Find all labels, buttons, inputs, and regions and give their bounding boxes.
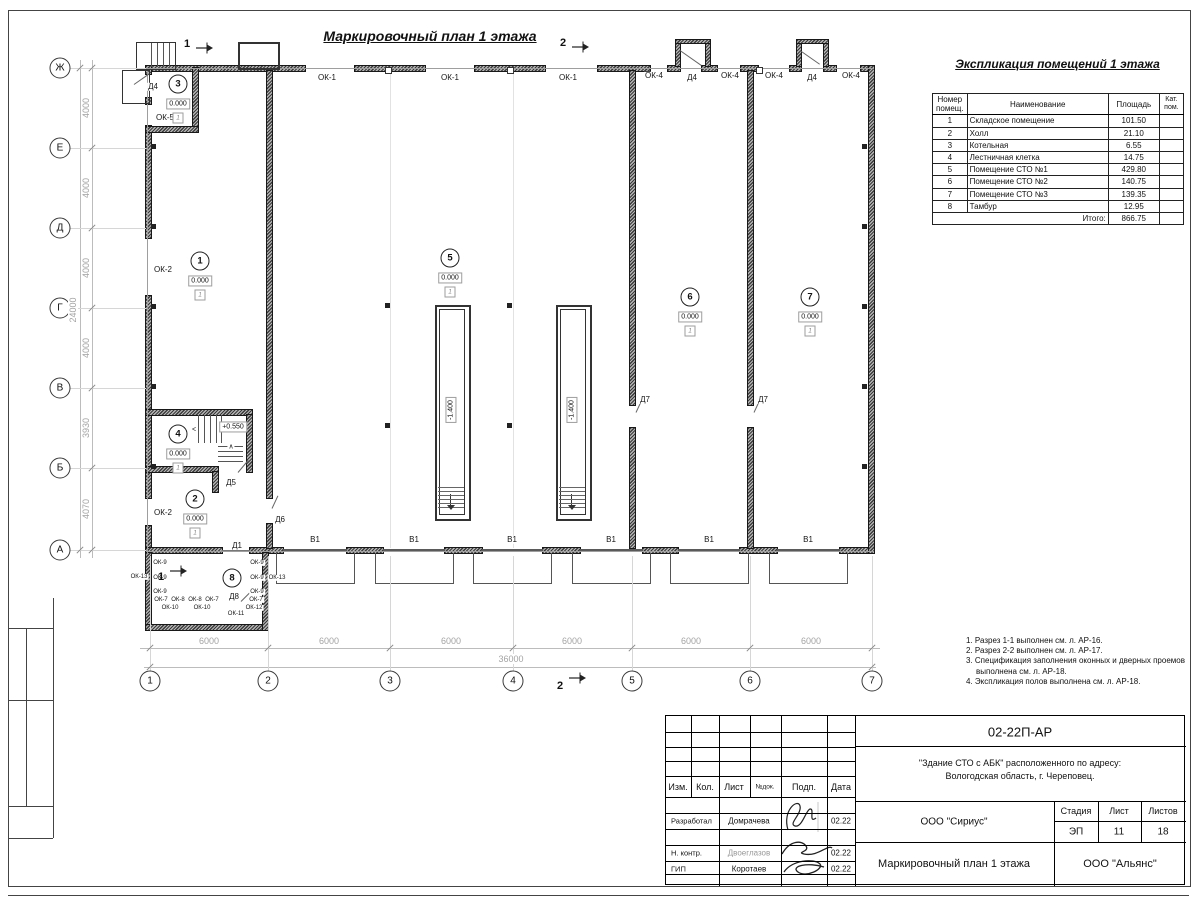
wall xyxy=(824,40,828,66)
plan-label-ОК-12: ОК-12 xyxy=(245,605,264,611)
table-cell: 429.80 xyxy=(1108,164,1159,176)
wall xyxy=(247,415,252,472)
stamp-role: ГИП xyxy=(671,865,686,874)
plan-label-Д6: Д6 xyxy=(274,516,286,524)
plan-label-ОК-1: ОК-1 xyxy=(317,74,337,82)
table-row: 2Холл21.10 xyxy=(933,127,1184,139)
plan-label-ОК-7: ОК-7 xyxy=(248,597,264,603)
stamp-line xyxy=(666,797,855,798)
axis-line xyxy=(150,556,151,672)
axis-line xyxy=(70,388,146,389)
table-cell: 4 xyxy=(933,151,968,163)
stamp-line xyxy=(855,746,1186,747)
stamp-line xyxy=(855,842,1186,843)
stamp-line xyxy=(666,874,855,875)
table-cell: 6 xyxy=(933,176,968,188)
stamp-line xyxy=(666,813,855,814)
wall xyxy=(213,472,218,492)
dim-label: 3930 xyxy=(81,417,91,439)
dim-label: 4000 xyxy=(81,337,91,359)
stamp-name: Двоеглазов xyxy=(728,849,771,858)
stamp-col-header: Изм. xyxy=(668,782,687,792)
expl-col-header: Площадь xyxy=(1108,94,1159,115)
plan-label-Д7: Д7 xyxy=(757,396,769,404)
notes-list: 1. Разрез 1-1 выполнен см. л. АР-16.2. Р… xyxy=(966,636,1200,687)
sheets-label: Листов xyxy=(1148,806,1177,816)
plan-label-ОК-1: ОК-1 xyxy=(440,74,460,82)
plan-line xyxy=(218,451,243,452)
table-cell: Холл xyxy=(967,127,1108,139)
plan-label-ОК-9: ОК-9 xyxy=(152,560,168,566)
stamp-line xyxy=(750,716,751,797)
room-bubble-8: 8 xyxy=(223,569,242,588)
axis-bubble-Е: Е xyxy=(50,138,71,159)
wall xyxy=(193,68,198,127)
table-cell: Складское помещение xyxy=(967,115,1108,127)
stamp-line xyxy=(666,732,855,733)
plan-line xyxy=(147,66,148,553)
plan-line xyxy=(678,549,740,551)
apron-line xyxy=(354,553,355,583)
title-block: 02-22П-АР"Здание СТО с АБК" расположенно… xyxy=(665,715,1185,885)
explication-header-row: Номер помещ.НаименованиеПлощадьКат. пом. xyxy=(933,94,1184,115)
window-axis-marker xyxy=(756,67,763,74)
table-row: 8Тамбур12.95 xyxy=(933,200,1184,212)
plan-line xyxy=(210,415,211,443)
leader-line xyxy=(272,496,279,509)
stamp-col-header: Лист xyxy=(724,782,744,792)
apron-line xyxy=(572,553,573,583)
section-arrow-icon xyxy=(569,671,587,683)
plan-label-ОК-9: ОК-9 xyxy=(249,575,265,581)
pit-elevation-mark: -1.400 xyxy=(445,397,456,423)
plan-label-ОК-7: ОК-7 xyxy=(204,597,220,603)
plan-label-ОК-13: ОК-13 xyxy=(268,575,287,581)
dim-label: 6000 xyxy=(440,636,462,646)
table-cell: 12.95 xyxy=(1108,200,1159,212)
stamp-line xyxy=(855,801,1186,802)
plan-label-В1: В1 xyxy=(309,536,321,544)
plan-line xyxy=(146,551,874,552)
apron-line xyxy=(650,553,651,583)
plan-line xyxy=(144,667,876,668)
stamp-date: 02.22 xyxy=(831,817,851,826)
elevation-mark: 0.000 xyxy=(438,272,462,283)
floor-type-mark: 1 xyxy=(445,287,456,298)
doc-number: 02-22П-АР xyxy=(988,725,1052,740)
plan-line xyxy=(218,456,243,457)
project-address-line2: Вологодская область, г. Череповец. xyxy=(945,771,1094,781)
plan-line xyxy=(80,60,81,558)
wall xyxy=(676,40,680,66)
apron-line xyxy=(473,553,474,583)
room-bubble-1: 1 xyxy=(191,252,210,271)
plan-label-Д4: Д4 xyxy=(686,74,698,82)
axis-bubble-7: 7 xyxy=(862,671,883,692)
stamp-date: 02.22 xyxy=(831,849,851,858)
sheet-label: Лист xyxy=(1109,806,1129,816)
stamp-line xyxy=(666,747,855,748)
axis-line xyxy=(70,228,146,229)
table-cell: 5 xyxy=(933,164,968,176)
table-cell: Помещение СТО №2 xyxy=(967,176,1108,188)
section-mark-2: 2 xyxy=(557,680,563,692)
plan-label-ОК-9: ОК-9 xyxy=(152,589,168,595)
stamp-role: Разработал xyxy=(671,817,712,826)
plan-line xyxy=(198,415,199,443)
elevation-mark: 0.000 xyxy=(183,513,207,524)
table-cell: 1 xyxy=(933,115,968,127)
drawing-name: Маркировочный план 1 этажа xyxy=(878,858,1030,870)
stamp-col-header: №док. xyxy=(755,784,774,791)
room-bubble-7: 7 xyxy=(801,288,820,307)
axis-bubble-Ж: Ж xyxy=(50,58,71,79)
section-mark-1: 1 xyxy=(184,38,190,50)
table-row: 5Помещение СТО №1429.80 xyxy=(933,164,1184,176)
stamp-col-header: Кол. xyxy=(696,782,714,792)
section-arrow-icon xyxy=(196,41,214,53)
axis-bubble-1: 1 xyxy=(140,671,161,692)
apron-line xyxy=(769,583,848,584)
table-cell: 2 xyxy=(933,127,968,139)
axis-bubble-4: 4 xyxy=(503,671,524,692)
org1-name: ООО "Сириус" xyxy=(920,817,987,828)
plan-label-Д4: Д4 xyxy=(147,83,159,91)
total-label: Итого: xyxy=(933,212,1109,224)
dim-label: 6000 xyxy=(680,636,702,646)
room-bubble-2: 2 xyxy=(186,490,205,509)
plan-line xyxy=(777,549,840,551)
apron-line xyxy=(572,583,651,584)
table-cell: 140.75 xyxy=(1108,176,1159,188)
expl-col-header: Наименование xyxy=(967,94,1108,115)
stage-label: Стадия xyxy=(1061,806,1092,816)
floor-type-mark: 1 xyxy=(195,290,206,301)
pit-hatch-line xyxy=(559,499,585,500)
plan-label-Д7: Д7 xyxy=(639,396,651,404)
dim-label: 6000 xyxy=(318,636,340,646)
plan-label-В1: В1 xyxy=(605,536,617,544)
plan-line xyxy=(513,72,514,548)
wall xyxy=(267,524,272,548)
note-item: 3. Спецификация заполнения оконных и две… xyxy=(966,656,1200,676)
stamp-line xyxy=(1054,821,1186,822)
column-marker xyxy=(151,464,156,469)
dim-label: 6000 xyxy=(198,636,220,646)
table-cell: 7 xyxy=(933,188,968,200)
drawing-sheet: Маркировочный план 1 этажа Экспликация п… xyxy=(0,0,1200,900)
apron-line xyxy=(276,583,355,584)
org2-name: ООО "Альянс" xyxy=(1083,858,1157,870)
floor-type-mark: 1 xyxy=(190,528,201,539)
axis-bubble-2: 2 xyxy=(258,671,279,692)
plan-line xyxy=(216,415,217,443)
axis-bubble-5: 5 xyxy=(622,671,643,692)
column-marker xyxy=(507,303,512,308)
axis-bubble-В: В xyxy=(50,378,71,399)
stamp-name: Коротаев xyxy=(732,865,767,874)
table-row: 3Котельная6.55 xyxy=(933,139,1184,151)
sheets-value: 18 xyxy=(1157,827,1168,838)
plan-label-∧: ∧ xyxy=(227,443,234,450)
apron-line xyxy=(375,553,376,583)
plan-label-ОК-13: ОК-13 xyxy=(130,574,149,580)
room-bubble-4: 4 xyxy=(169,425,188,444)
plan-label-ОК-2: ОК-2 xyxy=(153,266,173,274)
elevation-mark: 0.000 xyxy=(166,98,190,109)
plan-line xyxy=(383,549,445,551)
axis-line xyxy=(70,550,146,551)
plan-line xyxy=(218,461,243,462)
section-mark-1: 1 xyxy=(158,571,164,583)
section-mark-2: 2 xyxy=(560,37,566,49)
stamp-line xyxy=(666,776,855,777)
table-total-row: Итого:866.75 xyxy=(933,212,1184,224)
plan-line xyxy=(283,549,347,551)
stamp-name: Домрачева xyxy=(728,817,769,826)
signature-developer-icon xyxy=(778,796,830,836)
column-marker xyxy=(151,224,156,229)
plan-label-В1: В1 xyxy=(802,536,814,544)
pit-hatch-line xyxy=(559,495,585,496)
dim-label: 4000 xyxy=(81,177,91,199)
axis-line xyxy=(70,68,146,69)
elevation-mark: 0.000 xyxy=(166,448,190,459)
stamp-role: Н. контр. xyxy=(671,849,702,858)
plan-label-ОК-8: ОК-8 xyxy=(187,597,203,603)
apron-line xyxy=(453,553,454,583)
leader-line xyxy=(680,50,702,66)
project-address-line1: "Здание СТО с АБК" расположенного по адр… xyxy=(919,758,1121,768)
plan-label-Д1: Д1 xyxy=(231,542,243,550)
apron-line xyxy=(769,553,770,583)
plan-rect xyxy=(136,42,176,70)
wall xyxy=(797,40,828,43)
plan-label-ОК-10: ОК-10 xyxy=(161,605,180,611)
plan-label-ОК-7: ОК-7 xyxy=(153,597,169,603)
apron-line xyxy=(670,553,671,583)
axis-line xyxy=(70,308,146,309)
column-marker xyxy=(151,144,156,149)
table-cell: Тамбур xyxy=(967,200,1108,212)
note-item: 2. Разрез 2-2 выполнен см. л. АР-17. xyxy=(966,646,1200,656)
pit-hatch-line xyxy=(438,491,464,492)
axis-bubble-6: 6 xyxy=(740,671,761,692)
column-marker xyxy=(862,144,867,149)
pit-hatch-line xyxy=(559,491,585,492)
window-axis-marker xyxy=(507,67,514,74)
axis-bubble-Б: Б xyxy=(50,458,71,479)
stage-value: ЭП xyxy=(1069,827,1083,838)
table-cell xyxy=(1159,139,1183,151)
stamp-date: 02.22 xyxy=(831,865,851,874)
table-cell xyxy=(1159,200,1183,212)
axis-bubble-А: А xyxy=(50,540,71,561)
stamp-line xyxy=(691,716,692,797)
wall xyxy=(146,127,198,132)
elevation-mark: 0.000 xyxy=(678,311,702,322)
column-marker xyxy=(507,423,512,428)
note-item: 1. Разрез 1-1 выполнен см. л. АР-16. xyxy=(966,636,1200,646)
section-arrow-icon xyxy=(170,564,188,576)
table-cell: 139.35 xyxy=(1108,188,1159,200)
axis-line xyxy=(750,556,751,672)
elevation-mark: 0.000 xyxy=(798,311,822,322)
total-value: 866.75 xyxy=(1108,212,1159,224)
table-cell: Помещение СТО №1 xyxy=(967,164,1108,176)
table-cell: Помещение СТО №3 xyxy=(967,188,1108,200)
apron-line xyxy=(847,553,848,583)
column-marker xyxy=(862,224,867,229)
table-cell: Котельная xyxy=(967,139,1108,151)
plan-label-ОК-9: ОК-9 xyxy=(249,560,265,566)
plan-label-ОК-11: ОК-11 xyxy=(227,611,245,617)
room-bubble-6: 6 xyxy=(681,288,700,307)
wall xyxy=(748,428,753,548)
table-cell xyxy=(1159,164,1183,176)
pit-hatch-line xyxy=(438,503,464,504)
section-arrow-icon xyxy=(572,40,590,52)
pit-elevation-mark: -1.400 xyxy=(566,397,577,423)
wall xyxy=(869,66,874,553)
elevation-mark: 0.000 xyxy=(188,275,212,286)
room-bubble-3: 3 xyxy=(169,75,188,94)
plan-line xyxy=(204,415,205,443)
plan-label-ОК-4: ОК-4 xyxy=(720,72,740,80)
plan-label-Д8: Д8 xyxy=(228,593,240,601)
pit-hatch-line xyxy=(438,495,464,496)
table-cell: 14.75 xyxy=(1108,151,1159,163)
table-cell: Лестничная клетка xyxy=(967,151,1108,163)
wall xyxy=(676,40,710,43)
plan-label-ОК-9: ОК-9 xyxy=(249,589,265,595)
floor-type-mark: 1 xyxy=(805,326,816,337)
plan-line xyxy=(580,549,643,551)
plan-line xyxy=(482,549,543,551)
wall xyxy=(146,410,252,415)
wall xyxy=(630,428,635,548)
plan-label-ОК-4: ОК-4 xyxy=(764,72,784,80)
table-row: 1Складское помещение101.50 xyxy=(933,115,1184,127)
stamp-col-header: Подп. xyxy=(792,782,816,792)
axis-bubble-Д: Д xyxy=(50,218,71,239)
table-cell xyxy=(1159,188,1183,200)
axis-line xyxy=(70,148,146,149)
sheet-value: 11 xyxy=(1114,827,1124,838)
plan-label-<: < xyxy=(191,426,197,433)
stamp-line xyxy=(1054,801,1055,886)
floor-type-mark: 1 xyxy=(173,463,184,474)
apron-line xyxy=(551,553,552,583)
table-cell xyxy=(1159,212,1183,224)
wall xyxy=(146,625,268,630)
plan-label-ОК-2: ОК-2 xyxy=(153,509,173,517)
floor-type-mark: 1 xyxy=(173,113,184,124)
column-marker xyxy=(385,303,390,308)
dim-label: 6000 xyxy=(561,636,583,646)
table-cell: 8 xyxy=(933,200,968,212)
axis-line xyxy=(872,556,873,672)
leader-line xyxy=(800,50,820,65)
floor-type-mark: 1 xyxy=(685,326,696,337)
table-cell: 6.55 xyxy=(1108,139,1159,151)
table-cell xyxy=(1159,151,1183,163)
column-marker xyxy=(862,464,867,469)
plan-label-Д4: Д4 xyxy=(806,74,818,82)
pit-hatch-line xyxy=(438,499,464,500)
pit-hatch-line xyxy=(438,487,464,488)
axis-bubble-3: 3 xyxy=(380,671,401,692)
dim-label: 4070 xyxy=(81,498,91,520)
dim-label: 6000 xyxy=(800,636,822,646)
plan-label-Д5: Д5 xyxy=(225,479,237,487)
plan-label-ОК-10: ОК-10 xyxy=(193,605,212,611)
wall xyxy=(267,71,272,498)
pit-hatch-line xyxy=(559,487,585,488)
plan-label-В1: В1 xyxy=(408,536,420,544)
axis-line xyxy=(632,556,633,672)
apron-line xyxy=(670,583,749,584)
apron-line xyxy=(375,583,454,584)
axis-line xyxy=(390,556,391,672)
column-marker xyxy=(151,304,156,309)
column-marker xyxy=(862,384,867,389)
table-cell: 21.10 xyxy=(1108,127,1159,139)
landing-elevation-mark: +0.550 xyxy=(219,421,247,432)
explication-table: Номер помещ.НаименованиеПлощадьКат. пом.… xyxy=(932,93,1184,225)
table-row: 6Помещение СТО №2140.75 xyxy=(933,176,1184,188)
table-cell xyxy=(1159,127,1183,139)
plan-label-В1: В1 xyxy=(703,536,715,544)
pit-arrow-icon xyxy=(447,505,455,510)
column-marker xyxy=(385,423,390,428)
stamp-line xyxy=(666,845,855,846)
plan-line xyxy=(390,72,391,548)
plan-label-В1: В1 xyxy=(506,536,518,544)
expl-col-header: Кат. пом. xyxy=(1159,94,1183,115)
table-row: 7Помещение СТО №3139.35 xyxy=(933,188,1184,200)
axis-line xyxy=(268,556,269,672)
table-cell xyxy=(1159,176,1183,188)
expl-col-header: Номер помещ. xyxy=(933,94,968,115)
column-marker xyxy=(151,384,156,389)
room-bubble-5: 5 xyxy=(441,249,460,268)
table-cell: 3 xyxy=(933,139,968,151)
column-marker xyxy=(862,304,867,309)
wall xyxy=(797,40,801,66)
stamp-line xyxy=(666,861,855,862)
wall xyxy=(706,40,710,66)
table-row: 4Лестничная клетка14.75 xyxy=(933,151,1184,163)
stamp-line xyxy=(666,829,855,830)
plan-label-ОК-8: ОК-8 xyxy=(170,597,186,603)
window-axis-marker xyxy=(385,67,392,74)
pit-hatch-line xyxy=(559,503,585,504)
wall xyxy=(748,71,753,405)
stamp-col-header: Дата xyxy=(831,782,851,792)
plan-rect xyxy=(238,42,280,70)
note-item: 4. Экспликация полов выполнена см. л. АР… xyxy=(966,677,1200,687)
axis-line xyxy=(70,468,146,469)
dim-label: 4000 xyxy=(81,97,91,119)
pit-arrow-icon xyxy=(568,505,576,510)
dim-label: 4000 xyxy=(81,257,91,279)
table-cell: 101.50 xyxy=(1108,115,1159,127)
plan-label-ОК-4: ОК-4 xyxy=(644,72,664,80)
plan-label-ОК-4: ОК-4 xyxy=(841,72,861,80)
plan-line xyxy=(92,60,93,558)
dim-total-label: 24000 xyxy=(68,296,78,323)
